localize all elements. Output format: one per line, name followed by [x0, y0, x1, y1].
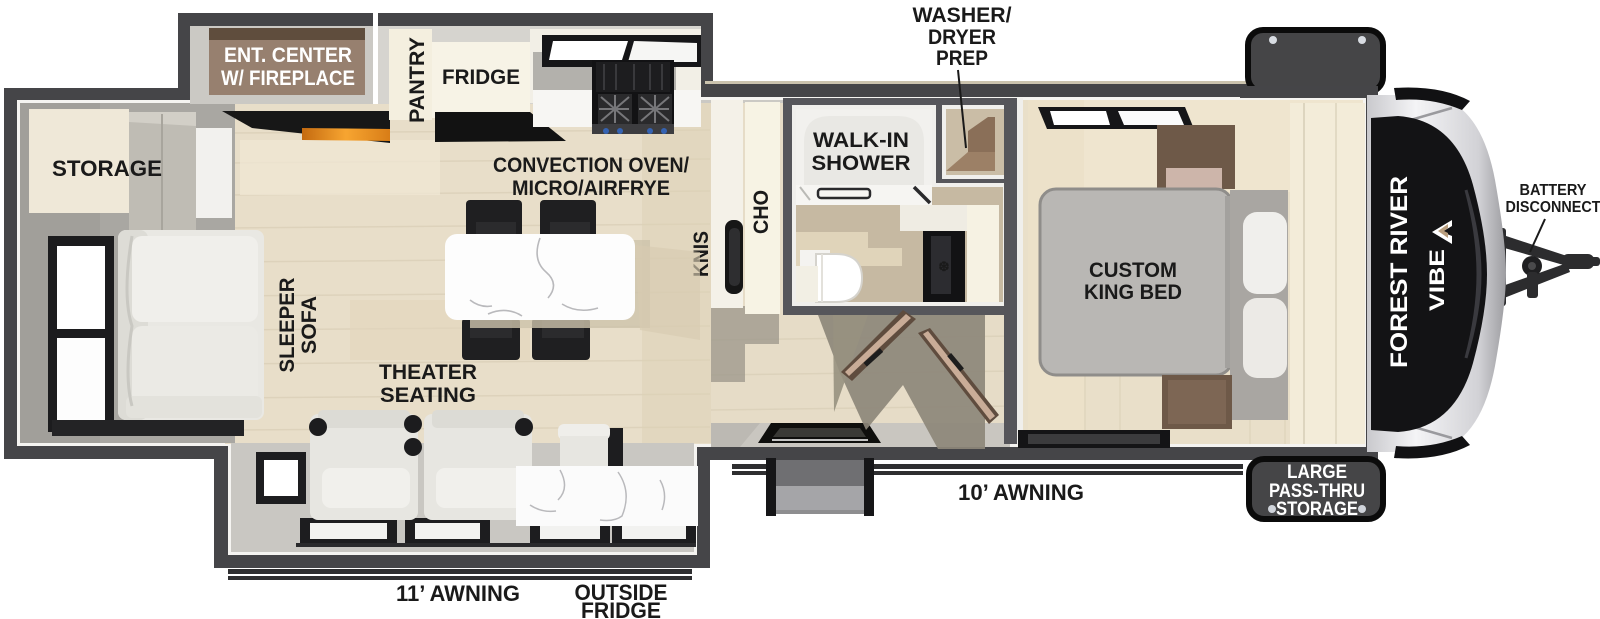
svg-text:CHO: CHO: [750, 190, 773, 234]
svg-text:WALK-IN: WALK-IN: [813, 129, 909, 152]
svg-text:STORAGE: STORAGE: [1276, 499, 1358, 520]
svg-text:❆: ❆: [939, 259, 950, 274]
svg-text:VIBE: VIBE: [1426, 249, 1449, 311]
svg-text:PREP: PREP: [936, 47, 988, 70]
svg-text:W/ FIREPLACE: W/ FIREPLACE: [221, 67, 355, 90]
svg-text:PANTRY: PANTRY: [406, 37, 429, 123]
svg-text:CONVECTION OVEN/: CONVECTION OVEN/: [493, 154, 689, 177]
svg-text:DRYER: DRYER: [928, 26, 996, 49]
svg-text:THEATER: THEATER: [379, 361, 477, 384]
svg-text:FRIDGE: FRIDGE: [581, 598, 661, 619]
svg-text:SOFA: SOFA: [298, 296, 321, 354]
svg-text:WASHER/: WASHER/: [913, 4, 1012, 27]
svg-text:KING BED: KING BED: [1084, 281, 1182, 304]
svg-text:BATTERY: BATTERY: [1520, 182, 1587, 199]
svg-text:MICRO/AIRFRYE: MICRO/AIRFRYE: [512, 177, 670, 200]
svg-text:FRIDGE: FRIDGE: [442, 66, 520, 89]
svg-text:DISCONNECT: DISCONNECT: [1506, 199, 1600, 216]
svg-text:FOREST RIVER: FOREST RIVER: [1386, 176, 1413, 368]
svg-text:10’ AWNING: 10’ AWNING: [958, 480, 1084, 505]
svg-text:11’ AWNING: 11’ AWNING: [396, 581, 520, 606]
svg-text:ENT. CENTER: ENT. CENTER: [224, 44, 352, 67]
svg-text:LARGE: LARGE: [1287, 462, 1347, 483]
svg-text:SEATING: SEATING: [380, 384, 476, 407]
svg-text:STORAGE: STORAGE: [52, 156, 162, 181]
svg-text:CUSTOM: CUSTOM: [1089, 259, 1177, 282]
svg-text:SLEEPER: SLEEPER: [276, 278, 299, 373]
svg-text:SHOWER: SHOWER: [812, 152, 911, 175]
